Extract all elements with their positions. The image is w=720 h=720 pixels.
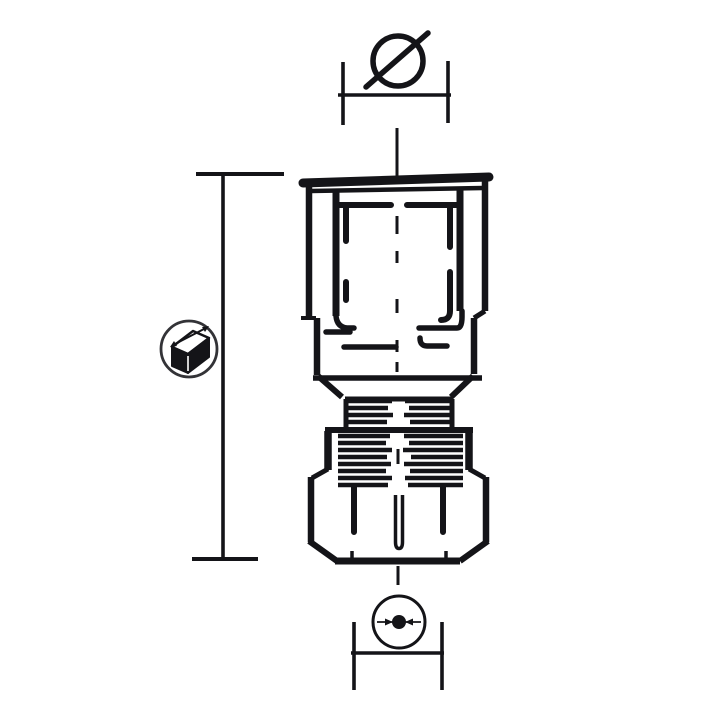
internal-bore-lines xyxy=(326,205,462,347)
bottom-dimension-ticks xyxy=(354,622,442,690)
seat-right-lines xyxy=(419,311,462,346)
hex-top-edge xyxy=(303,177,489,183)
tube-od-center-dot xyxy=(392,615,406,629)
nut-hex-corner-lines xyxy=(354,486,443,532)
tube-od-arrowhead-right xyxy=(405,619,413,626)
fitting-technical-drawing xyxy=(0,0,720,720)
technical-drawing-page xyxy=(0,0,720,720)
bore-right-vertical xyxy=(441,208,450,320)
top-dimension-ticks xyxy=(343,61,448,125)
center-bore-slot xyxy=(396,495,403,549)
tube-od-arrowhead-left xyxy=(385,619,393,626)
hex-right-step xyxy=(474,311,485,318)
tube-od-dot-icon xyxy=(373,596,425,648)
thread-section xyxy=(338,399,463,485)
thread-crest-lines xyxy=(338,401,463,485)
top-dimension-line xyxy=(338,61,451,178)
fitting-body-drawing xyxy=(301,177,489,561)
bottom-dimension-line xyxy=(351,622,444,690)
left-dimension-line xyxy=(192,174,284,559)
diameter-symbol-icon xyxy=(366,33,428,87)
length-3d-box-icon xyxy=(161,321,217,377)
centerline-dashes xyxy=(397,216,398,464)
hex-body-outline xyxy=(301,177,489,397)
seat-left-lines xyxy=(326,316,396,347)
